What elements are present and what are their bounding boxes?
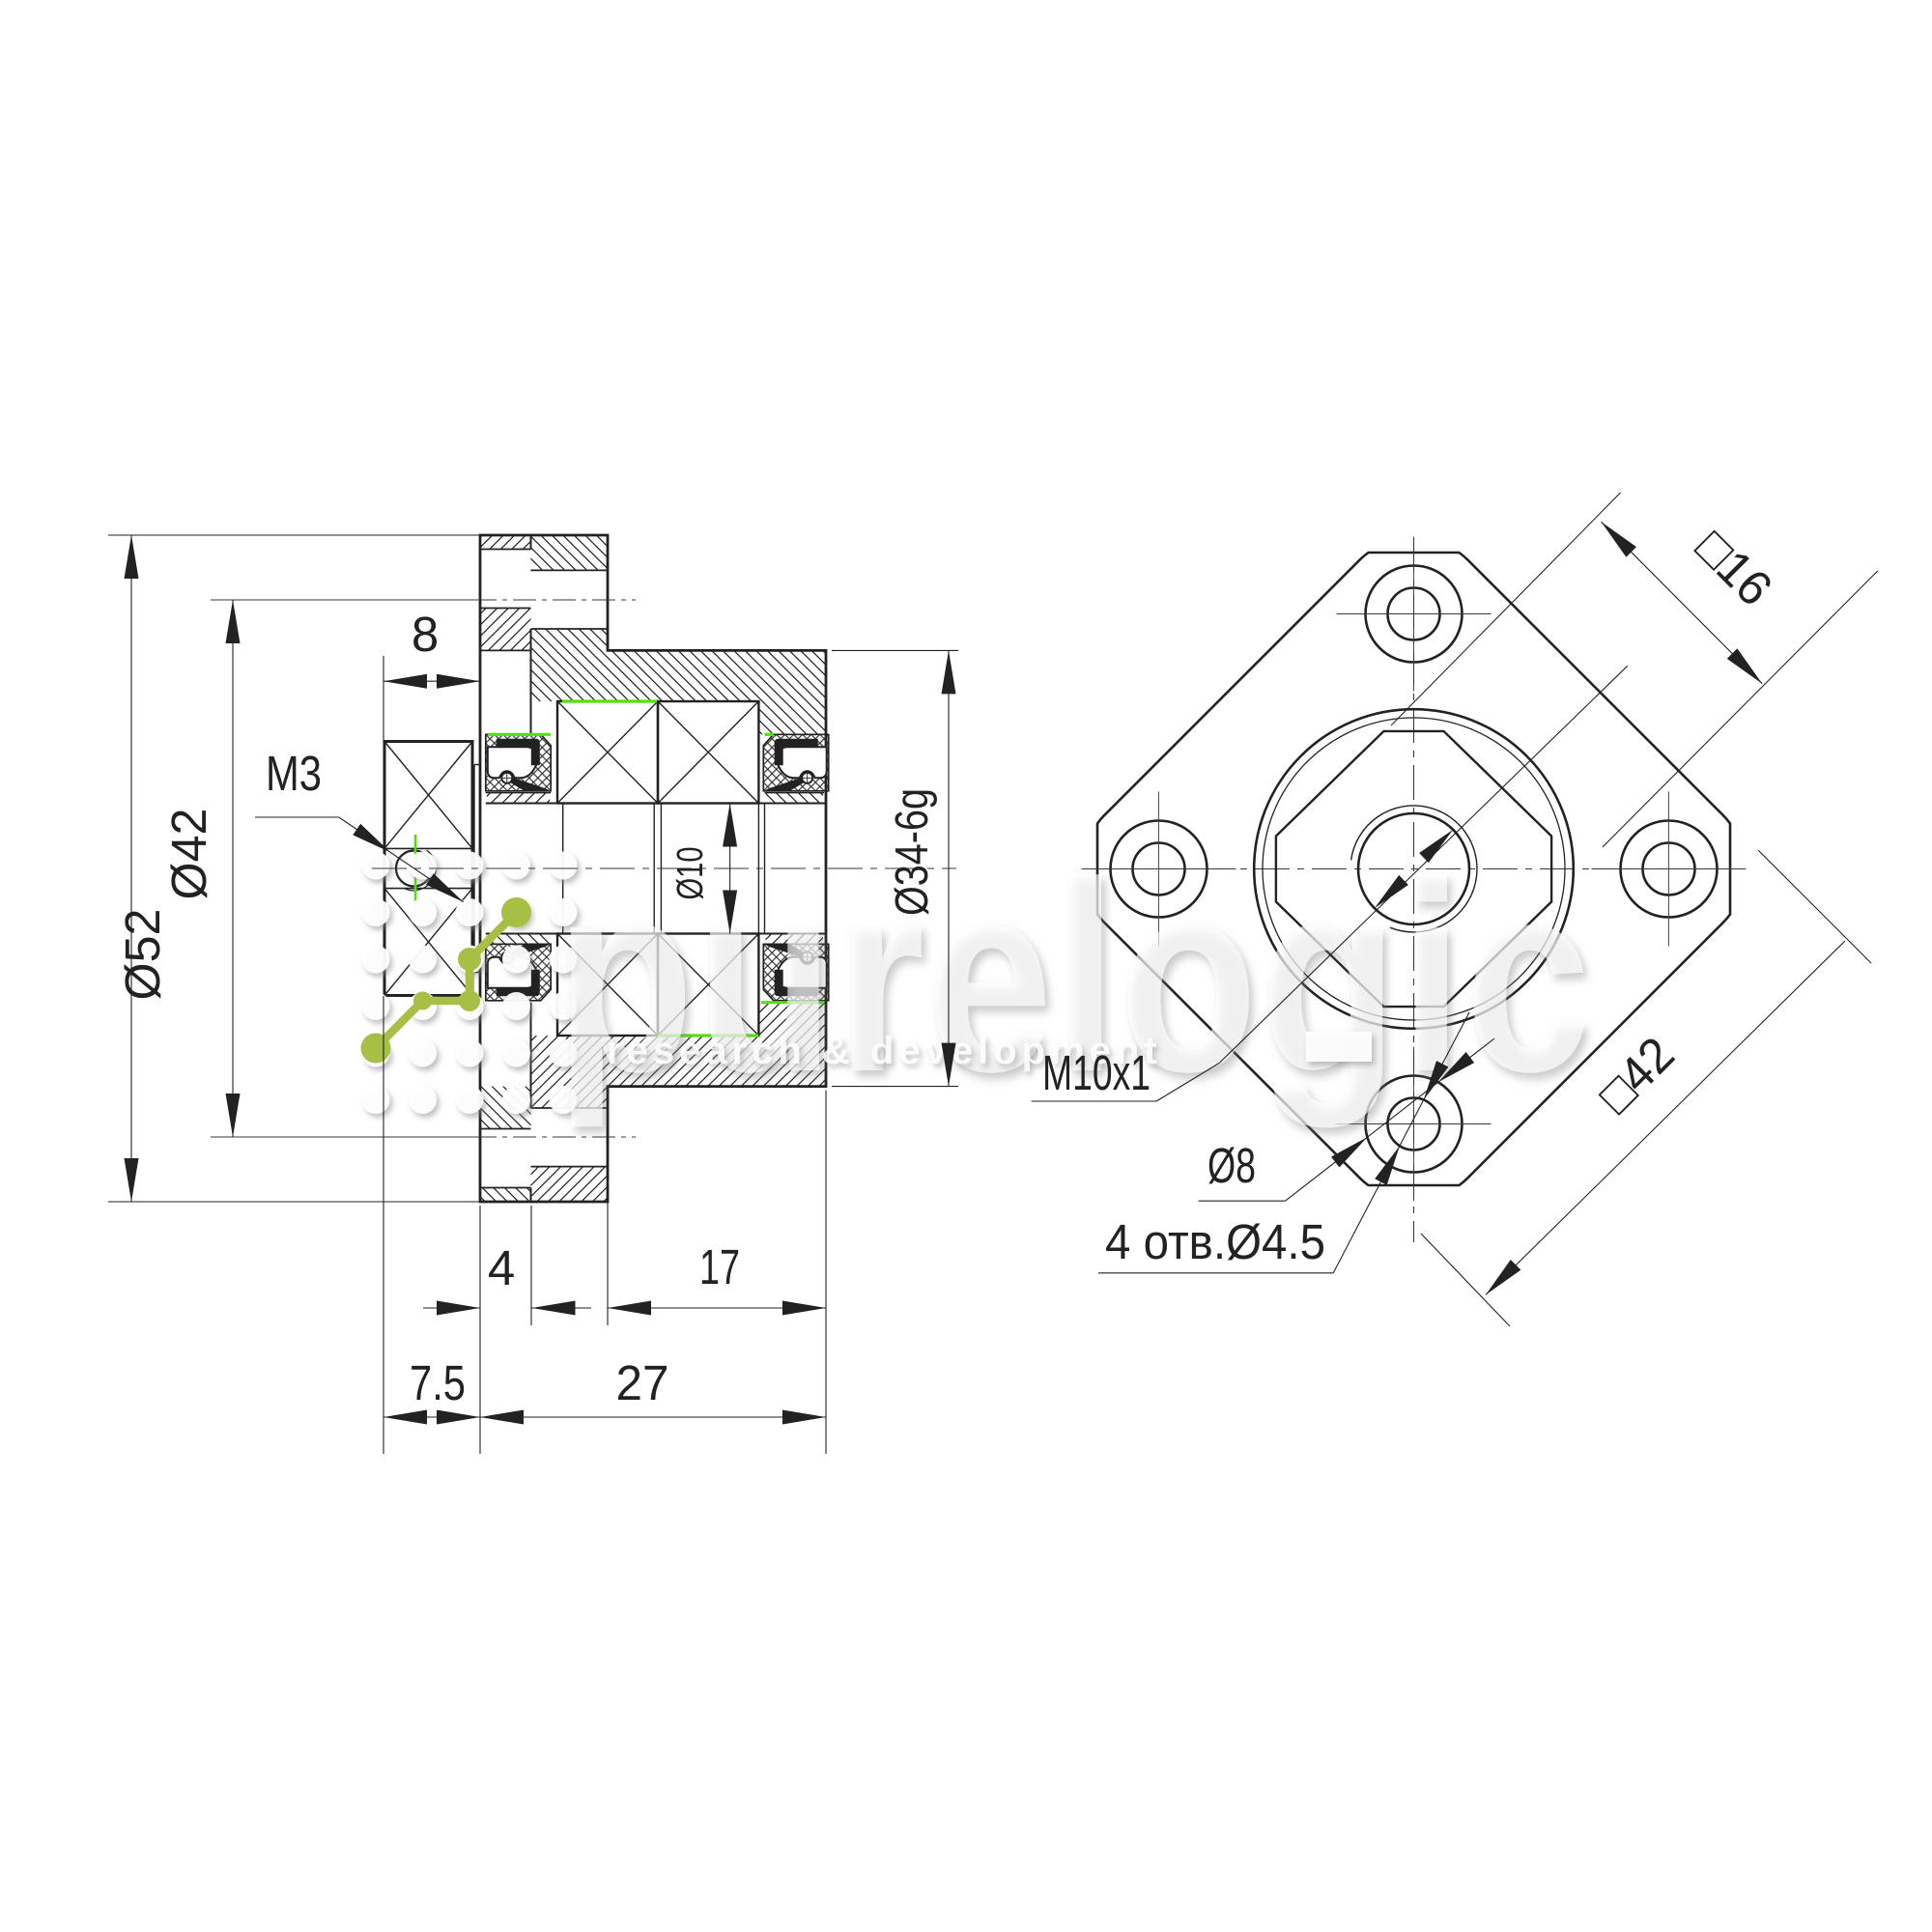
svg-text:Ø42: Ø42	[161, 809, 216, 900]
svg-text:Ø8: Ø8	[1207, 1138, 1256, 1193]
svg-text:M10x1: M10x1	[1042, 1045, 1151, 1100]
svg-text:8: 8	[412, 607, 439, 662]
svg-text:7.5: 7.5	[410, 1355, 466, 1410]
svg-text:Ø52: Ø52	[115, 909, 170, 1001]
svg-text:Ø10: Ø10	[670, 847, 711, 900]
svg-text:M3: M3	[266, 746, 322, 801]
svg-text:4 отв.Ø4.5: 4 отв.Ø4.5	[1105, 1214, 1325, 1269]
svg-text:27: 27	[616, 1355, 669, 1410]
svg-text:Ø34-6g: Ø34-6g	[887, 788, 938, 916]
svg-text:4: 4	[488, 1240, 515, 1295]
svg-text:17: 17	[699, 1239, 740, 1294]
